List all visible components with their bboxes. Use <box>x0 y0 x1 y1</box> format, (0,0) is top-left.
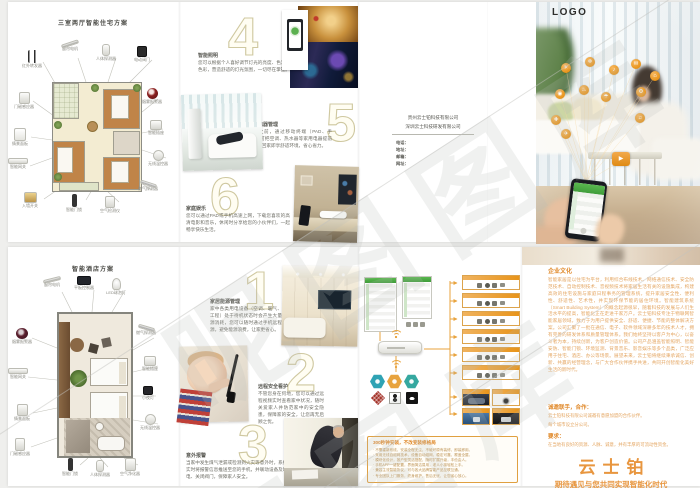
protocol-icon <box>406 392 418 404</box>
protocol-icon <box>404 374 419 389</box>
contact-field-label: 网址： <box>396 161 476 168</box>
install-note-box: 300秒钟安装，不改变装修格局 不需重新布线，安装全程无尘，不破坏原有装修，即装… <box>367 436 518 483</box>
home-button <box>580 228 587 235</box>
section-number: 4 <box>228 10 258 64</box>
device-category-box: 电动窗帘 <box>462 293 520 308</box>
tv <box>318 290 351 310</box>
category-label: 环境健康 <box>505 376 519 380</box>
round-table <box>70 338 84 352</box>
cover-photo <box>536 2 700 244</box>
app-screenshot <box>364 277 397 332</box>
device-category-box: 影音设备 <box>462 347 520 362</box>
gateway-device <box>378 341 422 354</box>
poster <box>338 174 357 204</box>
app-list <box>404 283 430 317</box>
mini-device-icons <box>406 322 428 328</box>
contact-field-label: 邮箱： <box>396 154 476 161</box>
category-photo <box>463 394 489 406</box>
device-category-box: 环境健康 <box>462 365 520 380</box>
wifi-icon <box>390 330 402 339</box>
wall-frame <box>300 175 312 185</box>
section-heading: 家庭娱乐 <box>186 205 206 212</box>
protocol-icon <box>370 374 385 389</box>
protocol-icons <box>370 374 422 408</box>
marble-floor <box>66 420 90 453</box>
company-name-1: 贵州云士铂科技有限公司 <box>390 114 476 123</box>
company-name-2: 深圳云士科技研发有限公司 <box>390 123 476 132</box>
section-heading: 家居能源管理 <box>210 298 240 305</box>
dining-table <box>87 121 98 132</box>
plug <box>226 391 236 403</box>
protocol-icon <box>387 374 402 389</box>
hotel-floorplan <box>57 312 133 458</box>
floorplan-balcony <box>59 182 99 191</box>
requirements-title: 要求： <box>548 432 565 440</box>
category-label: 影音设备 <box>505 358 519 362</box>
floorplan-bathroom <box>113 131 140 155</box>
category-label: 电动窗帘 <box>505 304 519 308</box>
hotel-plan-title: 智能酒店方案 <box>8 264 178 273</box>
chaise <box>283 317 325 338</box>
section-heading: 智能照明 <box>198 52 218 59</box>
fold-line <box>178 2 181 242</box>
plant <box>70 370 87 387</box>
culture-text: 智能家居是以住宅为平台，利用综合布线技术、网络通信技术、安全防范技术、自动控制技… <box>548 277 694 399</box>
baby-body <box>176 389 212 427</box>
app-header <box>403 277 431 282</box>
photo-study-room <box>293 165 359 243</box>
paper <box>292 470 318 480</box>
section-body: 您可以通过PAD或手机高速上网，下载您喜欢的高清电影和音乐，休闲时分享给您的小伙… <box>186 213 290 234</box>
invite-line: 云士铂科技有限公司诚邀有意愿加盟的合作伙伴。 <box>548 413 645 419</box>
install-note-title: 300秒钟安装，不改变装修格局 <box>373 440 512 446</box>
section-heading: 远程安全看护 <box>258 383 288 390</box>
ceiling <box>282 265 358 278</box>
device-category-box: 车载互联 <box>462 389 490 406</box>
phone-icon <box>287 19 303 51</box>
brand-name: 云士铂 <box>522 453 700 478</box>
protocol-icon <box>371 391 385 405</box>
plant <box>54 173 62 181</box>
protocol-icon <box>389 392 401 404</box>
category-label: 智能面板 <box>505 340 519 344</box>
plant <box>133 84 141 92</box>
chair <box>101 337 112 348</box>
photo-kitchen-man <box>284 418 358 486</box>
device-category-stack: 智能照明 电动窗帘 安防传感 智能面板 影音设备 <box>462 275 520 383</box>
culture-title: 企业文化 <box>548 266 572 275</box>
baby-head <box>187 356 228 395</box>
man-head <box>333 427 344 438</box>
invite-line: 每个城市设立分公司。 <box>548 422 592 428</box>
chair <box>88 343 99 354</box>
bathtub <box>97 436 125 451</box>
device-category-box: 智能安防 <box>492 389 520 406</box>
device-category-box: 智能家电 <box>492 408 520 425</box>
wardrobe-console <box>59 322 70 418</box>
home-plan-title: 三室两厅智能住宅方案 <box>8 18 178 27</box>
air-conditioner <box>187 109 201 159</box>
app-list <box>366 284 395 330</box>
floorplan-kitchen <box>53 83 79 119</box>
bed <box>111 95 129 119</box>
play-icon: ▶ <box>612 152 630 166</box>
bed <box>90 392 128 420</box>
photo-living-room <box>181 93 263 171</box>
photo-collage <box>282 6 358 88</box>
cabinet <box>342 418 358 470</box>
device-category-box: 智能照明 <box>462 275 520 290</box>
app-header <box>365 278 396 283</box>
device-category-box: 智能面板 <box>462 329 520 344</box>
photo-tv-wall <box>281 265 358 346</box>
app-screenshot <box>402 276 432 319</box>
bed <box>57 147 73 173</box>
device-category-box: 背景音乐 <box>462 408 490 425</box>
fold-line <box>520 247 523 486</box>
plant <box>91 84 99 92</box>
divider <box>392 134 474 135</box>
photo-baby-socket <box>179 345 248 422</box>
category-label: 智能照明 <box>505 286 519 290</box>
device-category-box: 安防传感 <box>462 311 520 326</box>
logo-text: LOGO <box>552 7 587 18</box>
section-body: 您可以根据个人喜好调节灯光的亮度、色温、色彩，营造舒适的灯光氛围，一切尽在掌握。 <box>198 60 290 74</box>
contact-block: 贵州云士铂科技有限公司 深圳云士科技研发有限公司 电话： 地址： 邮箱： 网址： <box>390 114 476 167</box>
photo-strip-phone-blur <box>600 248 624 262</box>
section-body: 当家中发生煤气泄漏或检测到火灾等意外时，系统会实时将报警信息推送至您的手机，并联… <box>186 460 292 481</box>
brochure-scan: 三室两厅智能住宅方案 红外转发器 门磁感应器 <box>0 0 700 488</box>
category-label: 安防传感 <box>505 322 519 326</box>
sink <box>95 422 104 431</box>
category-photo <box>493 413 519 425</box>
wifi-icon <box>390 360 402 369</box>
bed <box>111 161 129 183</box>
install-note-bullet: 专业团队上门服务，终身维护，售后无忧，让您省心放心。 <box>373 474 512 479</box>
invite-title: 诚邀联手，合作： <box>548 403 592 411</box>
brand-tagline: 期待遇见与您共同实现智能化时代 <box>522 479 700 488</box>
device-category-grid: 车载互联 智能安防 背景音乐 智能家电 <box>462 389 520 425</box>
plant <box>54 121 62 129</box>
section-heading: 意外报警 <box>186 452 206 459</box>
contact-field-label: 地址： <box>396 147 476 154</box>
photo-phone-card <box>282 10 308 70</box>
requirements-text: 在当地有良好的资源、人脉、诚意，并有丰厚的可流动性资金。 <box>548 442 671 448</box>
home-floorplan <box>52 82 142 192</box>
bed <box>90 358 128 386</box>
category-photo <box>463 413 489 425</box>
router-device <box>320 211 347 219</box>
category-photo <box>493 394 519 406</box>
